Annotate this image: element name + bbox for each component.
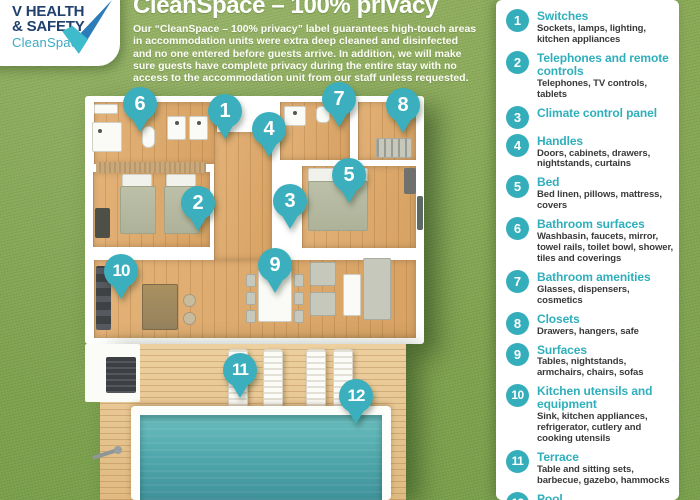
legend-item-title: Closets [537,311,639,326]
map-pin-tail [281,214,299,229]
legend-item-desc: Drawers, hangers, safe [537,327,639,338]
legend-item-number: 8 [506,312,529,335]
legend-item-desc: Washbasin, faucets, mirror, towel rails,… [537,232,674,265]
map-pin-5[interactable]: 5 [332,158,366,203]
legend-item-title: Telephones and remote controls [537,50,674,78]
map-pin-number: 10 [104,254,138,288]
map-pin-4[interactable]: 4 [252,112,286,157]
legend-item-number: 2 [506,51,529,74]
legend-item: 3Climate control panel [506,105,674,129]
map-pin-tail [394,118,412,133]
legend-item: 9SurfacesTables, nightstands, armchairs,… [506,342,674,380]
map-pin-number: 7 [322,82,356,116]
map-pin-tail [131,117,149,132]
legend-item: 1SwitchesSockets, lamps, lighting, kitch… [506,8,674,46]
sun-lounger [263,349,283,407]
pool-water [140,415,382,500]
map-pin-number: 9 [258,248,292,282]
map-pin-9[interactable]: 9 [258,248,292,293]
legend-item-number: 11 [506,450,529,473]
legend-item-desc: Tables, nightstands, armchairs, chairs, … [537,357,674,379]
legend-item-desc: Bed linen, pillows, mattress, covers [537,190,674,212]
legend-item-number: 10 [506,384,529,407]
legend-item-number: 7 [506,270,529,293]
legend-item-desc: Sink, kitchen appliances, refrigerator, … [537,412,674,445]
legend-item: 12PoolChlorination of water, deck chairs… [506,491,674,500]
bar-stool [183,294,196,307]
map-pin-number: 6 [123,87,157,121]
dining-chair [294,274,304,287]
logo-card: V HEALTH & SAFETY CleanSpace [0,0,120,66]
legend-item-desc: Glasses, dispensers, cosmetics [537,285,674,307]
legend-item-title: Switches [537,8,674,23]
infographic-canvas: 1 2 3 4 5 6 7 8 9 10 11 12 V HEALTH & SA… [0,0,700,500]
legend-item-number: 6 [506,217,529,240]
page-description: Our “CleanSpace – 100% privacy” label gu… [133,23,477,84]
map-pin-3[interactable]: 3 [273,184,307,229]
legend-item-number: 4 [506,134,529,157]
map-pin-2[interactable]: 2 [181,186,215,231]
barbecue-grill [106,357,136,393]
map-pin-number: 3 [273,184,307,218]
map-pin-tail [112,284,130,299]
map-pin-tail [266,278,284,293]
legend-item: 4HandlesDoors, cabinets, drawers, nights… [506,133,674,171]
checkmark-icon [54,0,116,60]
legend-item-number: 5 [506,175,529,198]
map-pin-number: 5 [332,158,366,192]
legend-item: 2Telephones and remote controlsTelephone… [506,50,674,101]
map-pin-number: 12 [339,379,373,413]
dining-chair [246,292,256,305]
legend-item-number: 3 [506,106,529,129]
legend-item-desc: Sockets, lamps, lighting, kitchen applia… [537,24,674,46]
legend-item-title: Bathroom amenities [537,269,674,284]
legend-item-desc: Telephones, TV controls, tablets [537,79,674,101]
legend-item-title: Handles [537,133,674,148]
dresser [95,208,110,238]
legend-item-title: Pool [537,491,674,500]
map-pin-6[interactable]: 6 [123,87,157,132]
map-pin-tail [216,124,234,139]
kitchen-island [142,284,178,330]
legend-item-title: Bed [537,174,674,189]
map-pin-number: 8 [386,88,420,122]
legend-item: 5BedBed linen, pillows, mattress, covers [506,174,674,212]
headboard-wall [96,162,206,173]
legend-item-title: Bathroom surfaces [537,216,674,231]
washbasin [167,116,186,140]
map-pin-1[interactable]: 1 [208,94,242,139]
legend-item-number: 1 [506,9,529,32]
armchair [310,262,336,286]
map-pin-tail [340,188,358,203]
map-pin-tail [189,216,207,231]
legend-item-title: Kitchen utensils and equipment [537,383,674,411]
map-pin-number: 4 [252,112,286,146]
map-pin-10[interactable]: 10 [104,254,138,299]
legend-item: 6Bathroom surfacesWashbasin, faucets, mi… [506,216,674,265]
legend-item-number: 9 [506,343,529,366]
sun-lounger [306,349,326,407]
map-pin-number: 2 [181,186,215,220]
bed-twin [120,186,156,234]
legend-item: 7Bathroom amenitiesGlasses, dispensers, … [506,269,674,307]
dining-chair [294,292,304,305]
legend-item-desc: Doors, cabinets, drawers, nightstands, c… [537,149,674,171]
legend-panel: 1SwitchesSockets, lamps, lighting, kitch… [496,0,679,500]
vanity-cabinet [284,106,306,126]
legend-item: 8ClosetsDrawers, hangers, safe [506,311,674,338]
map-pin-tail [347,409,365,424]
map-pin-tail [330,112,348,127]
dining-chair [246,274,256,287]
legend-item-desc: Table and sitting sets, barbecue, gazebo… [537,465,674,487]
legend-item: 10Kitchen utensils and equipmentSink, ki… [506,383,674,445]
sofa [363,258,391,320]
washbasin [189,116,208,140]
window [417,196,423,230]
armchair [310,292,336,316]
legend-item-number: 12 [506,492,529,500]
legend-item-title: Terrace [537,449,674,464]
map-pin-number: 1 [208,94,242,128]
dining-chair [246,310,256,323]
map-pin-number: 11 [223,353,257,387]
shower [92,122,122,152]
dresser [404,168,416,194]
wardrobe [376,138,412,158]
legend-item-title: Climate control panel [537,105,657,120]
outdoor-shower-head [114,446,122,454]
map-pin-7[interactable]: 7 [322,82,356,127]
legend-item-title: Surfaces [537,342,674,357]
coffee-table [343,274,361,316]
bar-stool [183,312,196,325]
shelf [94,104,118,114]
page-title: CleanSpace – 100% privacy [133,0,438,20]
legend-item: 11TerraceTable and sitting sets, barbecu… [506,449,674,487]
map-pin-12[interactable]: 12 [339,379,373,424]
map-pin-11[interactable]: 11 [223,353,257,398]
map-pin-8[interactable]: 8 [386,88,420,133]
dining-chair [294,310,304,323]
map-pin-tail [260,142,278,157]
map-pin-tail [231,383,249,398]
